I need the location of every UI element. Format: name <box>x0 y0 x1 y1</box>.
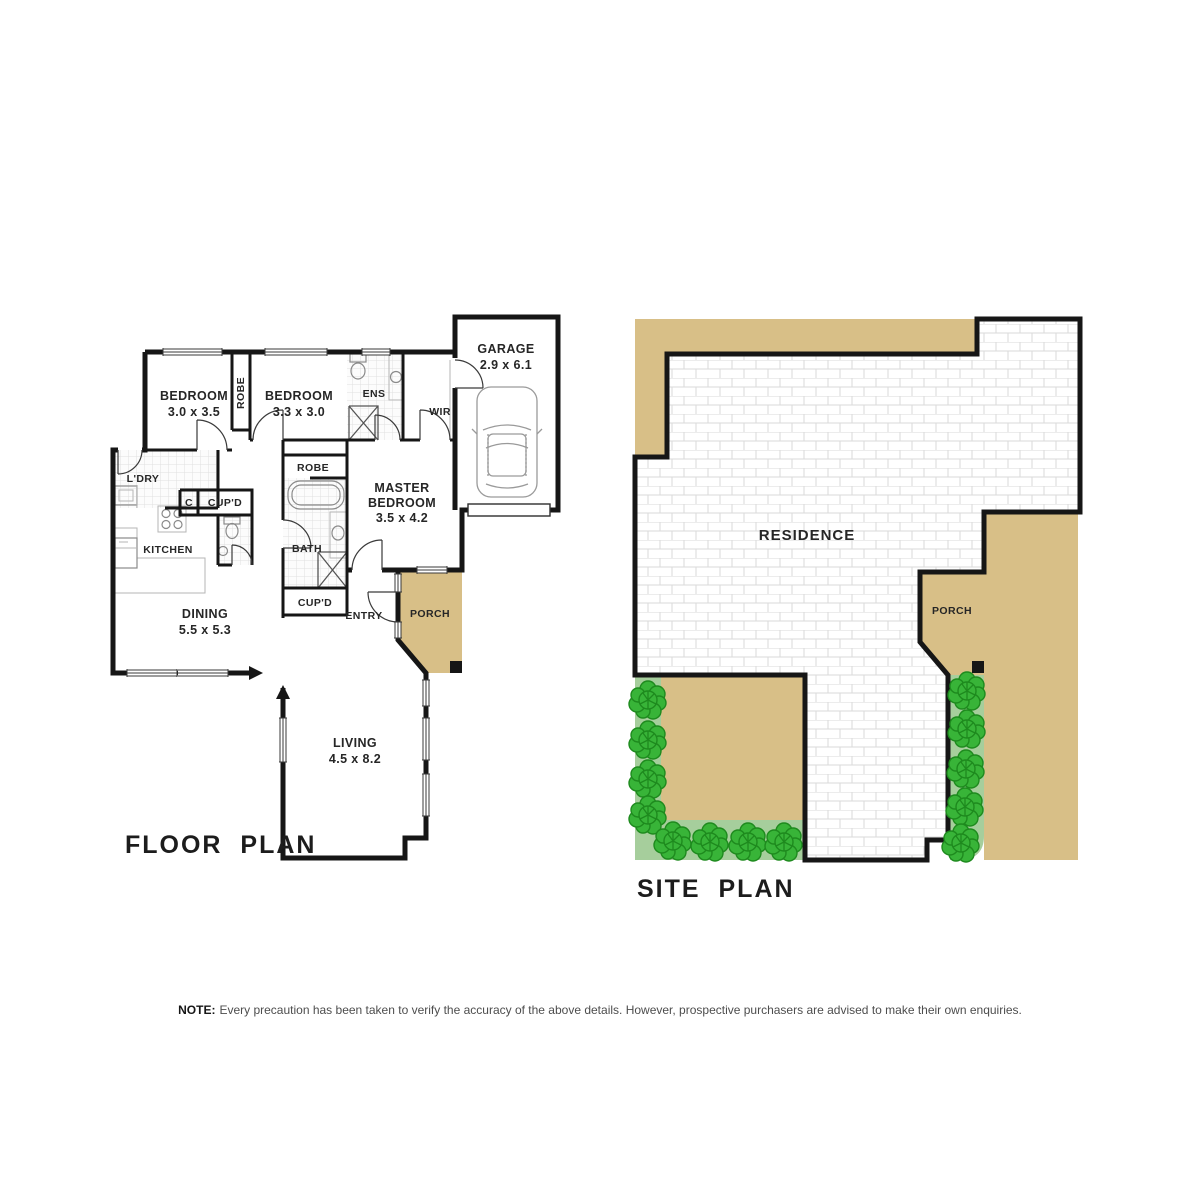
master-dims: 3.5 x 4.2 <box>376 511 428 525</box>
tree-icon <box>629 796 666 834</box>
window <box>279 718 287 762</box>
tree-icon <box>629 721 666 759</box>
disclaimer-note: NOTE:Every precaution has been taken to … <box>0 1003 1200 1017</box>
site-top-paving <box>635 319 977 354</box>
site-left-paving <box>635 319 669 459</box>
window <box>422 718 430 760</box>
robe2-label: ROBE <box>297 462 329 474</box>
wc-floor-tiles <box>218 515 252 565</box>
tree-icon <box>629 681 666 719</box>
porch-post <box>450 661 462 673</box>
cupd-bath-label: CUP'D <box>298 597 332 609</box>
living-dims: 4.5 x 8.2 <box>329 752 381 766</box>
window <box>394 622 402 638</box>
garage-dims: 2.9 x 6.1 <box>480 358 532 372</box>
cupd-hall-label: CUP'D <box>208 497 242 509</box>
tree-icon <box>629 760 666 798</box>
bedroom2-dims: 3.3 x 3.0 <box>273 405 325 419</box>
floor-plan-title: FLOOR PLAN <box>125 831 317 859</box>
bedroom1-dims: 3.0 x 3.5 <box>168 405 220 419</box>
wir-label: WIR <box>429 406 451 418</box>
robe1-label: ROBE <box>235 377 247 409</box>
bath-label: BATH <box>292 543 322 555</box>
site-plan: RESIDENCE PORCH SITE PLAN <box>629 319 1080 903</box>
window <box>362 348 390 356</box>
window <box>163 348 222 356</box>
window <box>394 574 402 592</box>
window <box>417 566 447 574</box>
site-courtyard-paving <box>661 675 805 820</box>
dining-label: DINING <box>182 607 228 621</box>
site-porch-label: PORCH <box>932 605 972 617</box>
window <box>422 680 430 706</box>
master-label-line1: MASTER <box>374 481 429 495</box>
site-porch-post <box>972 661 984 673</box>
bedroom1-label: BEDROOM <box>160 389 228 403</box>
window <box>127 669 177 677</box>
site-plan-title: SITE PLAN <box>637 875 795 903</box>
site-right-paving <box>984 512 1078 860</box>
entry-label: ENTRY <box>345 610 382 622</box>
window <box>422 774 430 816</box>
note-body: Every precaution has been taken to verif… <box>219 1003 1021 1017</box>
window <box>178 669 228 677</box>
living-label: LIVING <box>333 736 377 750</box>
residence-label: RESIDENCE <box>759 527 856 544</box>
note-prefix: NOTE: <box>178 1003 215 1017</box>
floor-plan: BEDROOM 3.0 x 3.5 ROBE BEDROOM 3.3 x 3.0… <box>113 317 558 859</box>
garage-label: GARAGE <box>477 342 534 356</box>
ens-label: ENS <box>363 388 386 400</box>
window <box>265 348 327 356</box>
kitchen-label: KITCHEN <box>143 544 192 556</box>
porch-label: PORCH <box>410 608 450 620</box>
plans-canvas: BEDROOM 3.0 x 3.5 ROBE BEDROOM 3.3 x 3.0… <box>0 0 1200 1200</box>
dining-dims: 5.5 x 5.3 <box>179 623 231 637</box>
bedroom2-label: BEDROOM <box>265 389 333 403</box>
ldry-label: L'DRY <box>127 473 160 485</box>
garage-door <box>468 504 550 516</box>
closet-label: C <box>185 497 193 509</box>
master-label-line2: BEDROOM <box>368 496 436 510</box>
